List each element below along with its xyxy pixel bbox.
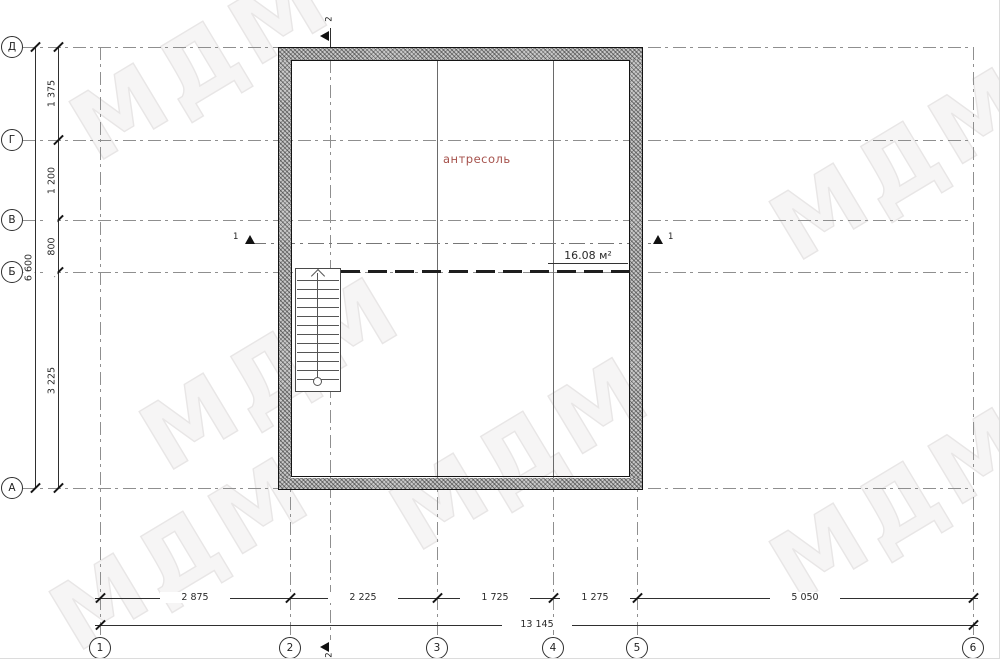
section-2-top-label: 2 — [325, 16, 335, 21]
dim-label-left-total: 6 600 — [24, 238, 35, 298]
area-label: 16.08 м² — [548, 249, 628, 264]
dim-label-left-2: 1 200 — [47, 151, 58, 211]
staircase-post-icon — [313, 377, 322, 386]
section-1-right-arrow-icon — [653, 235, 663, 244]
watermark-text: МДМ — [753, 385, 1000, 622]
col-bubble-4: 4 — [542, 637, 564, 659]
col-bubble-5: 5 — [626, 637, 648, 659]
wall-inner-outline — [291, 60, 630, 477]
staircase-center-rail — [317, 273, 318, 379]
row-bubble-g: Г — [1, 129, 23, 151]
col-bubble-6: 6 — [962, 637, 984, 659]
row-bubble-b: Б — [1, 261, 23, 283]
dim-label-bottom-2: 2 225 — [328, 592, 398, 603]
dim-label-bottom-1: 2 875 — [160, 592, 230, 603]
dim-line-left-segments — [58, 47, 59, 488]
section-2-bottom-label: 2 — [325, 652, 335, 657]
col-bubble-3: 3 — [426, 637, 448, 659]
grid-line-col-6 — [973, 47, 974, 637]
row-bubble-d: Д — [1, 36, 23, 58]
dim-label-left-3: 800 — [47, 217, 58, 277]
dim-label-left-4: 3 225 — [47, 351, 58, 411]
grid-line-col-1 — [100, 47, 101, 637]
dim-label-bottom-total: 13 145 — [502, 619, 572, 630]
dim-label-bottom-3: 1 725 — [460, 592, 530, 603]
dim-label-bottom-5: 5 050 — [770, 592, 840, 603]
dim-line-left-total — [35, 47, 36, 488]
section-1-right-label: 1 — [668, 232, 673, 242]
dim-label-bottom-4: 1 275 — [560, 592, 630, 603]
dim-label-left-1: 1 375 — [47, 64, 58, 124]
floor-plan-drawing: МДМ МДМ МДМ МДМ МДМ МДМ 2 2 1 1 антресол… — [0, 0, 1000, 659]
row-bubble-a: А — [1, 477, 23, 499]
section-2-top-arrow-icon — [320, 31, 329, 41]
section-1-left-arrow-icon — [245, 235, 255, 244]
section-1-left-label: 1 — [233, 232, 238, 242]
mezzanine-edge-line — [341, 270, 630, 273]
watermark-text: МДМ — [753, 45, 1000, 282]
section-2-top-line — [330, 28, 331, 47]
row-bubble-v: В — [1, 209, 23, 231]
section-2-bottom-arrow-icon — [320, 642, 329, 652]
col-bubble-1: 1 — [89, 637, 111, 659]
room-label: антресоль — [443, 152, 511, 166]
col-bubble-2: 2 — [279, 637, 301, 659]
staircase-treads — [297, 280, 339, 386]
